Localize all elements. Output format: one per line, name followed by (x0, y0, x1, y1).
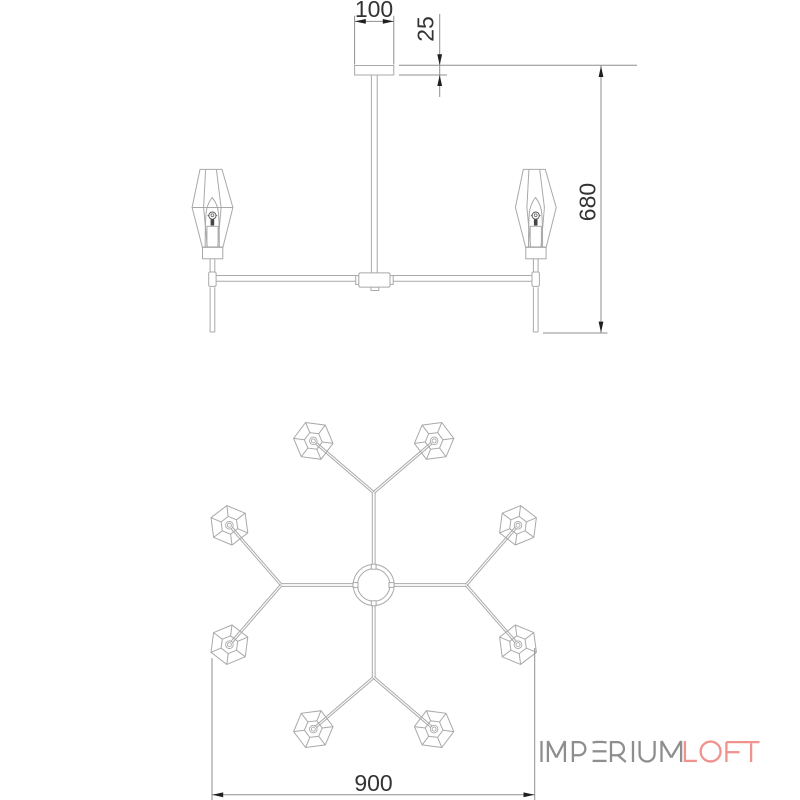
svg-text:680: 680 (575, 183, 601, 221)
svg-text:900: 900 (354, 770, 392, 796)
svg-text:25: 25 (413, 16, 439, 42)
svg-text:100: 100 (355, 0, 393, 22)
